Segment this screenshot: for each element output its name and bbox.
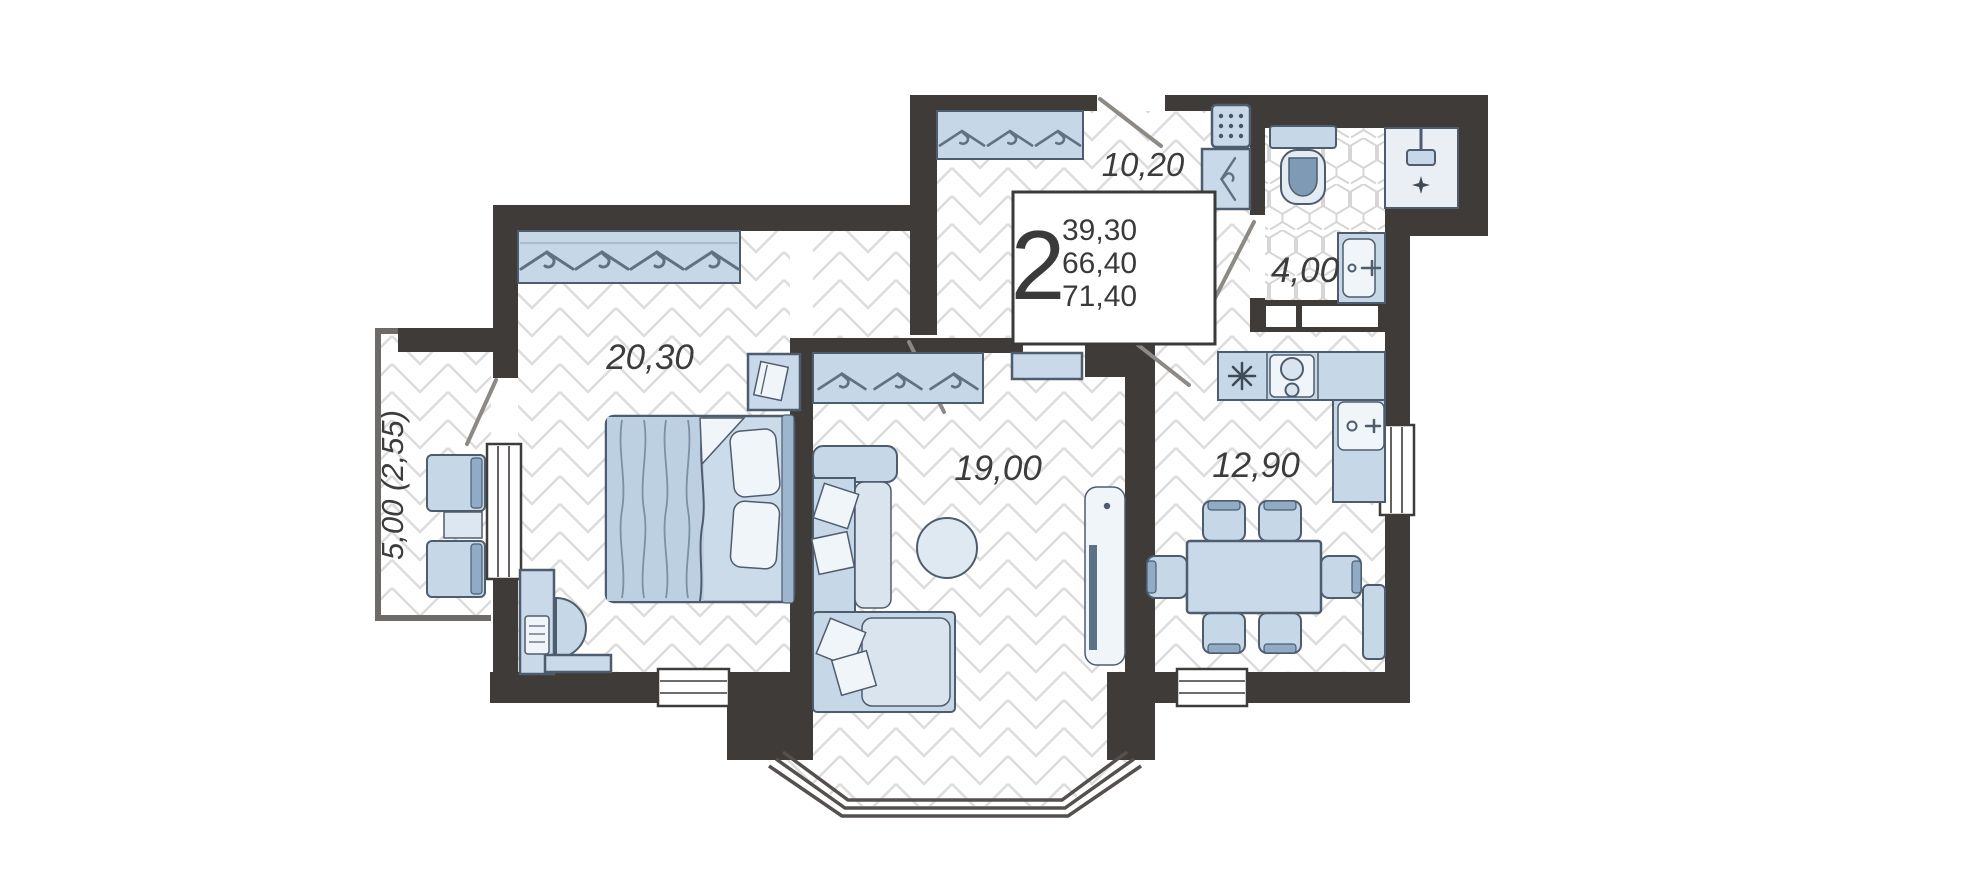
balcony-label: 5,00 (2,55) bbox=[375, 410, 410, 560]
tv-panel bbox=[1085, 487, 1125, 665]
sofa-pillow bbox=[812, 532, 855, 575]
pillow bbox=[729, 428, 781, 498]
book bbox=[754, 361, 788, 400]
kitchen-bottom-window bbox=[1177, 669, 1247, 706]
pillow bbox=[730, 500, 780, 569]
hallway-wardrobe bbox=[937, 111, 1083, 159]
rooms-count: 2 bbox=[1011, 210, 1066, 320]
hallway-label: 10,20 bbox=[1102, 146, 1185, 183]
dining-chair bbox=[1259, 613, 1301, 653]
laptop bbox=[525, 616, 549, 654]
shoe-cabinet bbox=[1212, 105, 1250, 147]
kitchen-sink-icon bbox=[1338, 402, 1384, 450]
balcony-chair bbox=[427, 541, 485, 597]
bedroom-wardrobe bbox=[518, 231, 740, 283]
area-total: 71,40 bbox=[1062, 280, 1137, 313]
balcony-step-wall bbox=[398, 328, 498, 352]
bedroom-entry-floor bbox=[813, 231, 910, 341]
balcony-window bbox=[487, 444, 521, 579]
dining-chair bbox=[1203, 613, 1245, 653]
area-usable: 66,40 bbox=[1062, 247, 1137, 280]
sofa-cushion bbox=[862, 618, 950, 706]
floor-plan-page: 10,20 4,00 20,30 19,00 12,90 5,00 (2,55)… bbox=[0, 0, 1980, 886]
bathroom-label: 4,00 bbox=[1271, 251, 1340, 290]
living-wardrobe bbox=[813, 353, 983, 403]
bedroom-top-wall bbox=[493, 205, 937, 231]
living-kitchen-wall bbox=[1125, 338, 1155, 675]
nightstand bbox=[748, 354, 800, 410]
bathroom-left-wall-upper bbox=[1250, 95, 1265, 215]
bathroom-top-wall bbox=[1250, 95, 1488, 128]
sofa-armrest bbox=[813, 446, 897, 482]
tv-screen bbox=[1089, 545, 1097, 650]
living-top-wall bbox=[790, 338, 1023, 353]
burner-icon bbox=[1229, 363, 1255, 389]
dining-chair bbox=[1203, 501, 1245, 541]
dining-chair bbox=[1259, 501, 1301, 541]
radiator bbox=[1363, 585, 1385, 659]
living-room-label: 19,00 bbox=[954, 449, 1042, 488]
bedroom-window bbox=[658, 669, 729, 706]
bed bbox=[606, 415, 794, 603]
kitchen-label: 12,90 bbox=[1212, 446, 1300, 485]
sofa-seat bbox=[855, 482, 891, 608]
hallway-top-wall bbox=[910, 95, 1097, 111]
kitchen-bottom-wall bbox=[1130, 672, 1410, 703]
area-living: 39,30 bbox=[1062, 214, 1137, 247]
bedroom-label: 20,30 bbox=[605, 338, 694, 377]
dining-table bbox=[1187, 541, 1321, 613]
bay-pillar-right bbox=[1107, 672, 1155, 760]
dining-chair bbox=[1147, 556, 1187, 598]
balcony-chair bbox=[427, 455, 485, 511]
balcony-table bbox=[444, 512, 482, 538]
headboard bbox=[782, 415, 794, 603]
coffee-table bbox=[917, 518, 977, 578]
bedroom-dresser bbox=[545, 655, 611, 672]
bay-pillar-left bbox=[727, 672, 813, 760]
dining-chair bbox=[1321, 556, 1361, 598]
bathroom-step-wall bbox=[1385, 208, 1488, 236]
cooktop-icon bbox=[1270, 355, 1314, 397]
vent-shaft bbox=[1266, 306, 1296, 327]
bathroom-sink-icon bbox=[1338, 233, 1385, 303]
shoe-cabinet-dots-icon bbox=[1219, 114, 1243, 138]
bedroom-left-wall-upper bbox=[493, 205, 518, 378]
floor-plan: 10,20 4,00 20,30 19,00 12,90 5,00 (2,55)… bbox=[0, 0, 1980, 886]
hall-shelf bbox=[1012, 353, 1082, 379]
hallway-left-wall bbox=[910, 95, 937, 335]
info-box: 2 39,30 66,40 71,40 bbox=[1011, 192, 1215, 344]
shower-icon bbox=[1385, 128, 1458, 208]
bedroom-left-wall-lower bbox=[493, 577, 518, 703]
vent-shaft bbox=[1302, 306, 1378, 327]
